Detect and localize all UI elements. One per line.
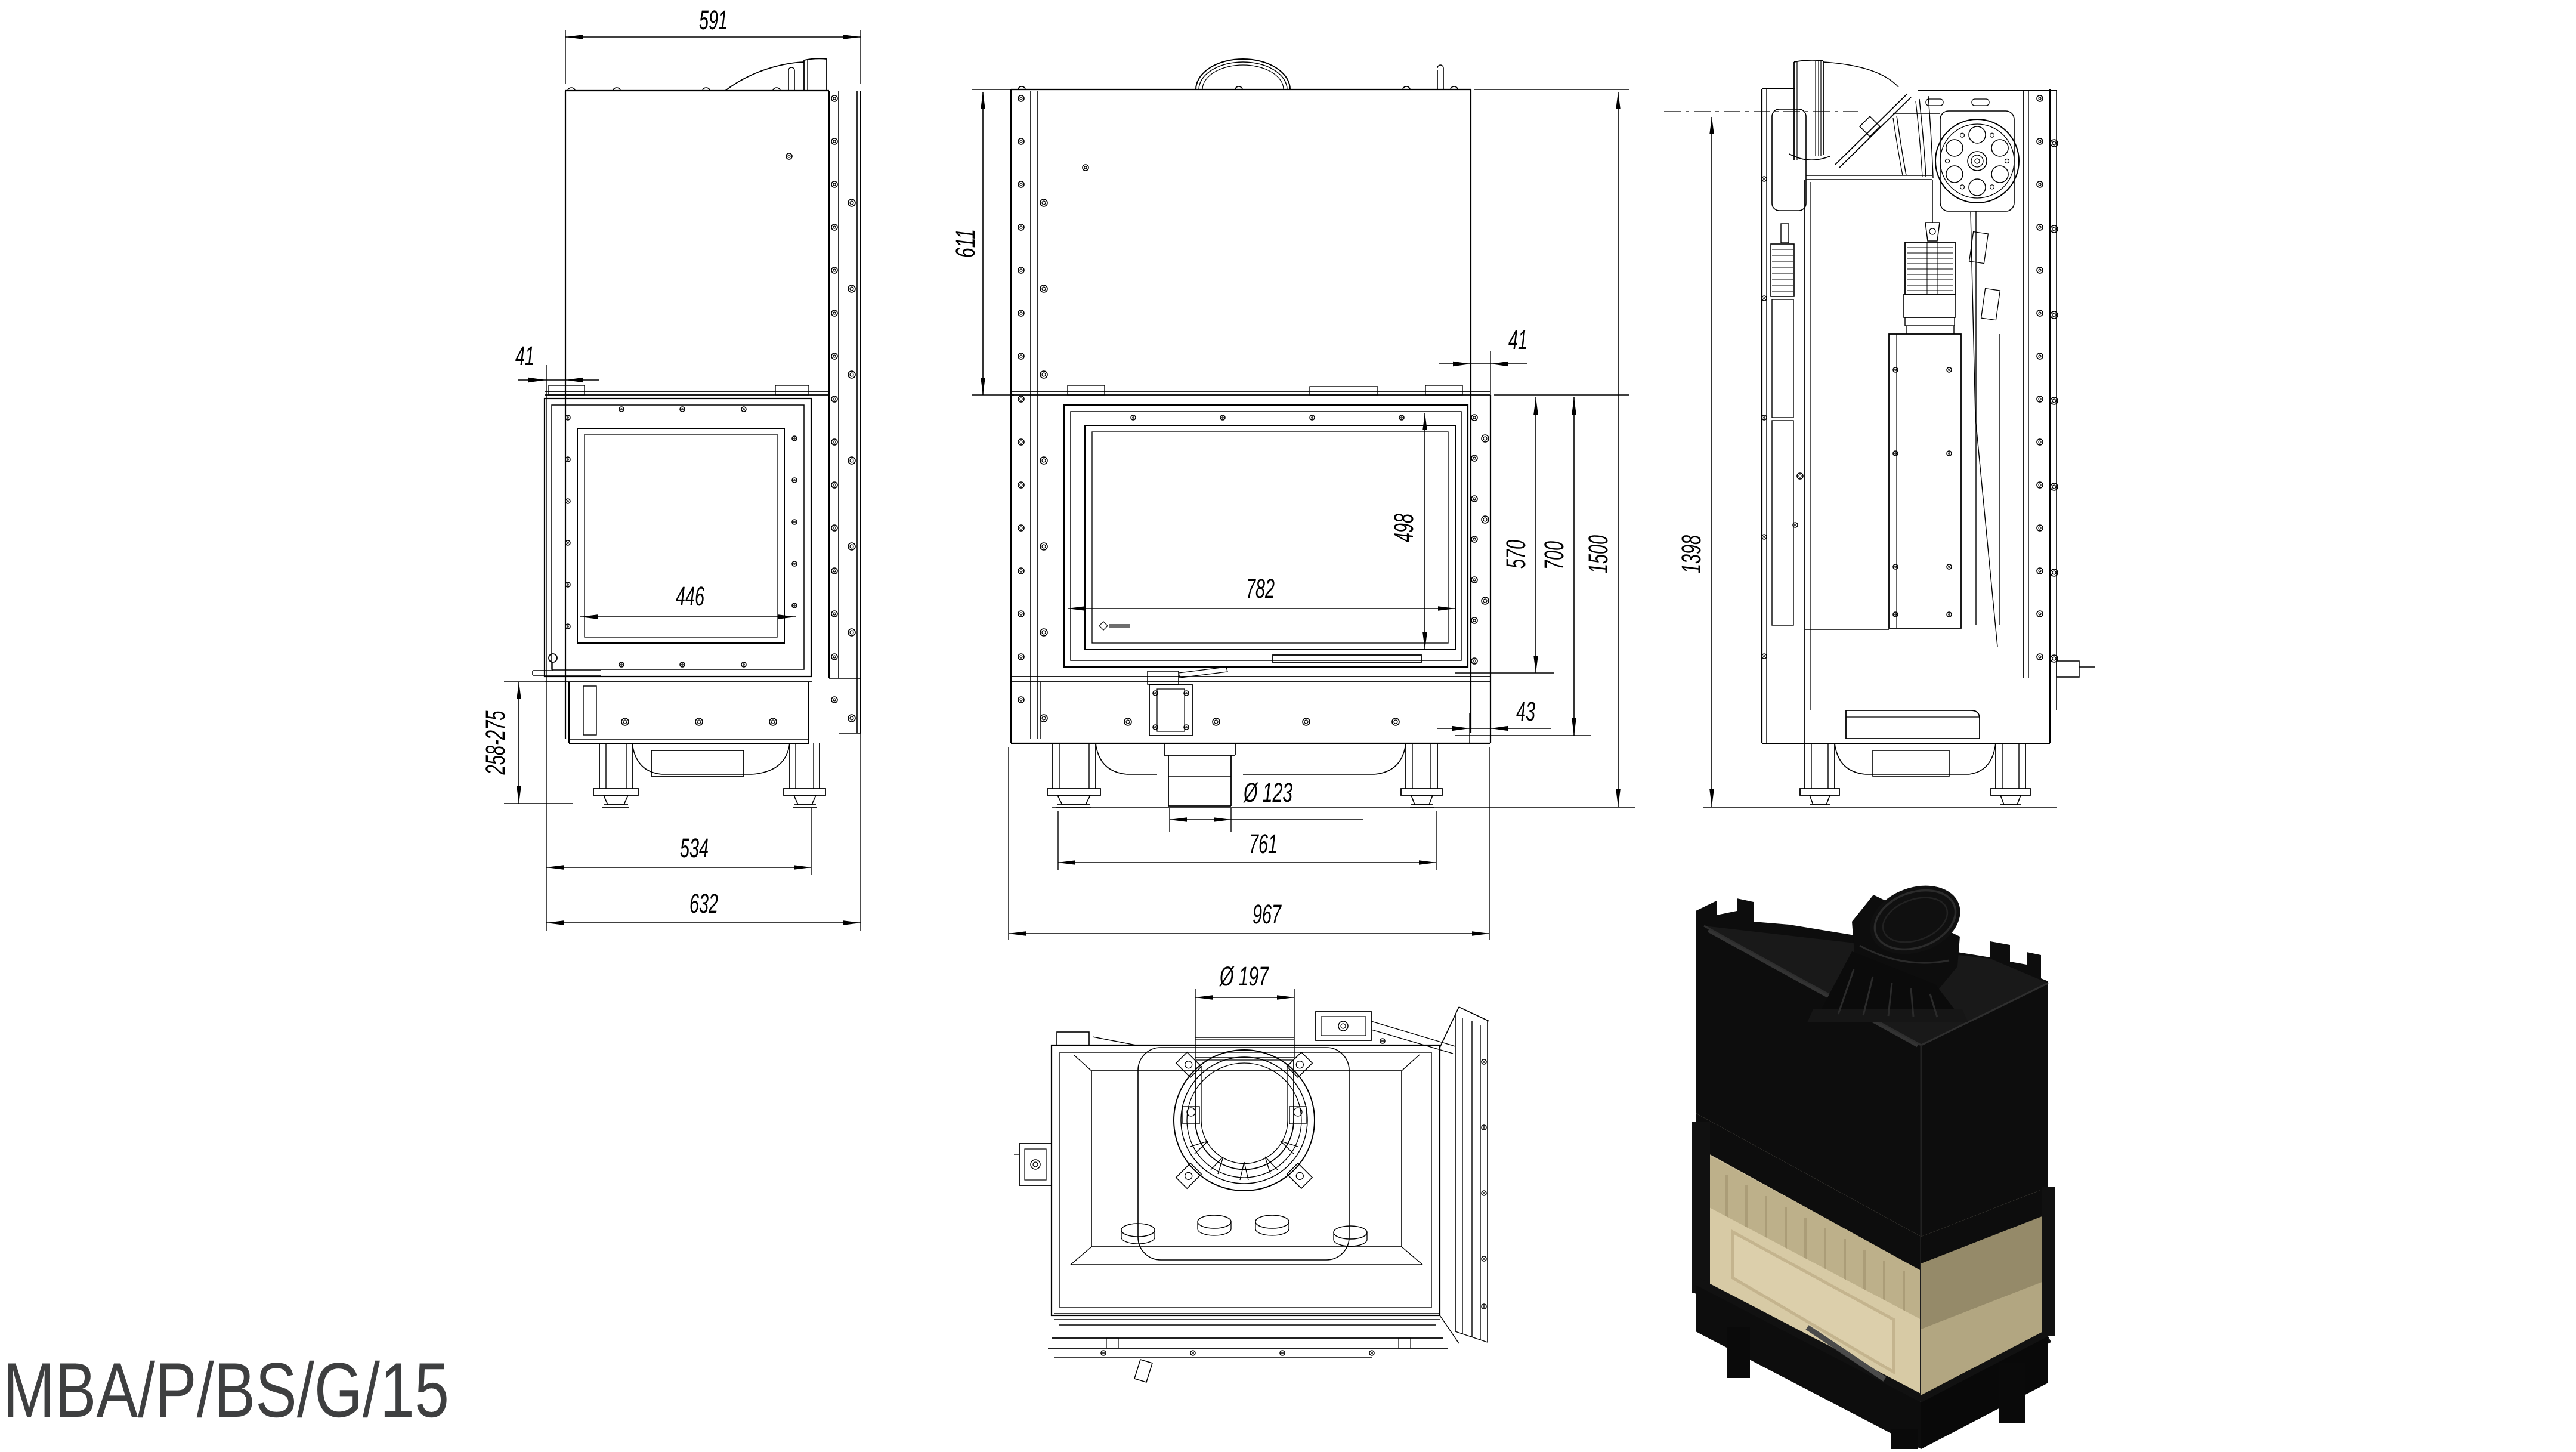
svg-text:41: 41	[1508, 325, 1527, 355]
svg-text:700: 700	[1539, 541, 1569, 570]
svg-text:258-275: 258-275	[480, 710, 511, 775]
svg-text:Ø 123: Ø 123	[1243, 777, 1292, 808]
svg-text:591: 591	[699, 5, 728, 35]
svg-text:498: 498	[1388, 514, 1419, 542]
svg-text:1398: 1398	[1676, 535, 1706, 573]
svg-text:570: 570	[1501, 540, 1531, 569]
svg-text:446: 446	[676, 581, 705, 611]
svg-text:611: 611	[950, 229, 981, 258]
svg-text:43: 43	[1516, 696, 1535, 727]
svg-text:967: 967	[1253, 899, 1282, 929]
svg-text:782: 782	[1246, 573, 1275, 604]
svg-text:Ø 197: Ø 197	[1219, 961, 1270, 991]
svg-text:MBA/P/BS/G/15: MBA/P/BS/G/15	[3, 1346, 449, 1434]
svg-text:534: 534	[680, 833, 709, 863]
svg-text:1500: 1500	[1583, 535, 1613, 573]
svg-text:632: 632	[689, 888, 718, 919]
svg-text:761: 761	[1249, 829, 1278, 859]
svg-text:41: 41	[515, 341, 534, 371]
